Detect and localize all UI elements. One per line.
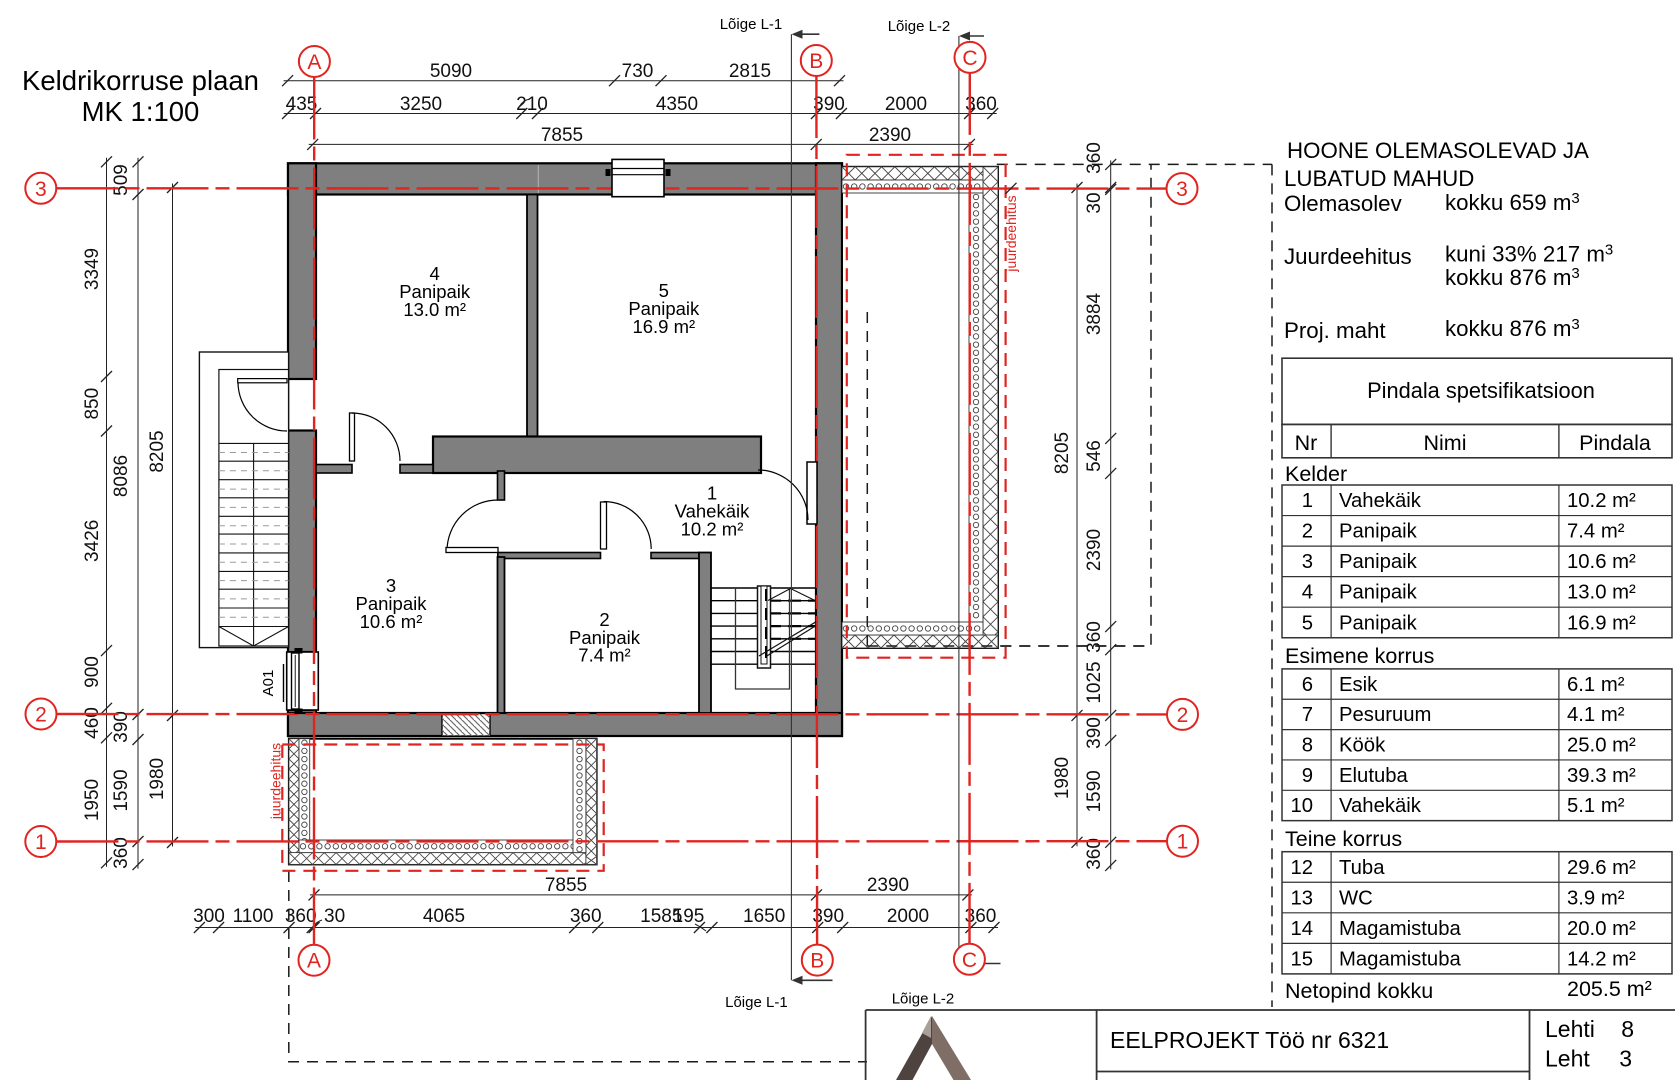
svg-text:13.0 m²: 13.0 m² xyxy=(403,299,466,320)
svg-text:8: 8 xyxy=(1621,1016,1634,1042)
svg-text:4065: 4065 xyxy=(423,906,465,927)
svg-text:Keldrikorruse plaan: Keldrikorruse plaan xyxy=(22,65,259,96)
svg-text:kokku 876 m3: kokku 876 m3 xyxy=(1445,316,1580,341)
svg-text:205.5 m²: 205.5 m² xyxy=(1567,977,1652,1001)
svg-text:Magamistuba: Magamistuba xyxy=(1339,948,1461,970)
svg-text:HOONE OLEMASOLEVAD JA: HOONE OLEMASOLEVAD JA xyxy=(1287,138,1589,163)
svg-text:3349: 3349 xyxy=(82,248,103,290)
svg-text:LUBATUD MAHUD: LUBATUD MAHUD xyxy=(1284,166,1474,191)
svg-text:1: 1 xyxy=(35,831,47,854)
svg-text:Köök: Köök xyxy=(1339,734,1386,756)
svg-text:7855: 7855 xyxy=(545,875,587,896)
svg-text:13: 13 xyxy=(1290,887,1313,909)
svg-text:7855: 7855 xyxy=(541,125,583,146)
svg-text:300: 300 xyxy=(193,906,225,927)
svg-text:390: 390 xyxy=(1084,717,1105,749)
svg-text:C: C xyxy=(962,47,977,70)
svg-text:Kelder: Kelder xyxy=(1285,462,1347,486)
svg-text:7.4 m²: 7.4 m² xyxy=(1567,521,1625,543)
svg-text:8086: 8086 xyxy=(111,455,132,497)
svg-text:7: 7 xyxy=(1302,704,1313,726)
svg-text:4350: 4350 xyxy=(656,94,698,115)
svg-text:10: 10 xyxy=(1290,795,1313,817)
svg-text:20.0 m²: 20.0 m² xyxy=(1567,918,1636,940)
svg-text:2815: 2815 xyxy=(729,61,771,82)
svg-text:Teine korrus: Teine korrus xyxy=(1285,827,1402,851)
svg-text:9: 9 xyxy=(1302,765,1313,787)
svg-text:MK 1:100: MK 1:100 xyxy=(82,96,200,127)
svg-text:juurdeehitus: juurdeehitus xyxy=(268,743,284,820)
svg-text:5.1 m²: 5.1 m² xyxy=(1567,795,1625,817)
svg-text:1590: 1590 xyxy=(1084,770,1105,812)
svg-text:3: 3 xyxy=(1619,1046,1632,1072)
svg-text:A: A xyxy=(307,950,321,973)
svg-text:Tuba: Tuba xyxy=(1339,857,1385,879)
svg-text:Juurdeehitus: Juurdeehitus xyxy=(1284,244,1412,269)
svg-text:900: 900 xyxy=(82,656,103,688)
svg-text:1: 1 xyxy=(1177,831,1189,854)
svg-text:15: 15 xyxy=(1290,948,1313,970)
svg-text:Panipaik: Panipaik xyxy=(1339,551,1418,573)
svg-text:C: C xyxy=(962,949,977,972)
svg-text:3426: 3426 xyxy=(82,520,103,562)
svg-text:8205: 8205 xyxy=(147,430,168,472)
svg-text:B: B xyxy=(809,50,823,73)
svg-text:Lõige L-1: Lõige L-1 xyxy=(720,16,783,33)
svg-text:4: 4 xyxy=(1302,582,1313,604)
svg-text:2390: 2390 xyxy=(869,125,911,146)
svg-text:10.6 m²: 10.6 m² xyxy=(1567,551,1636,573)
svg-text:6: 6 xyxy=(1302,674,1313,696)
svg-text:Panipaik: Panipaik xyxy=(1339,582,1418,604)
svg-text:10.2 m²: 10.2 m² xyxy=(1567,490,1636,512)
svg-text:2390: 2390 xyxy=(867,875,909,896)
svg-text:1650: 1650 xyxy=(743,906,785,927)
svg-text:1: 1 xyxy=(1302,490,1313,512)
svg-text:Nr: Nr xyxy=(1295,431,1318,455)
svg-text:WC: WC xyxy=(1339,887,1373,909)
svg-text:2000: 2000 xyxy=(885,94,927,115)
svg-text:Lehti: Lehti xyxy=(1545,1016,1595,1042)
svg-text:30: 30 xyxy=(324,906,345,927)
svg-text:kokku 876 m3: kokku 876 m3 xyxy=(1445,265,1580,290)
svg-text:2: 2 xyxy=(1302,521,1313,543)
svg-text:3.9 m²: 3.9 m² xyxy=(1567,887,1625,909)
svg-text:360: 360 xyxy=(570,906,602,927)
svg-text:Nimi: Nimi xyxy=(1424,431,1467,455)
svg-text:Esimene korrus: Esimene korrus xyxy=(1285,644,1434,668)
svg-text:10.2 m²: 10.2 m² xyxy=(681,518,744,539)
svg-text:EELPROJEKT Töö nr 6321: EELPROJEKT Töö nr 6321 xyxy=(1110,1027,1389,1053)
svg-text:435: 435 xyxy=(286,94,318,115)
svg-text:Lõige L-1: Lõige L-1 xyxy=(725,994,788,1011)
svg-text:3: 3 xyxy=(35,178,47,201)
svg-text:1980: 1980 xyxy=(1052,757,1073,799)
svg-text:1590: 1590 xyxy=(111,769,132,811)
svg-text:39.3 m²: 39.3 m² xyxy=(1567,765,1636,787)
svg-text:360: 360 xyxy=(285,906,317,927)
svg-text:14.2 m²: 14.2 m² xyxy=(1567,948,1636,970)
svg-text:Magamistuba: Magamistuba xyxy=(1339,918,1461,940)
svg-text:Vahekäik: Vahekäik xyxy=(1339,795,1422,817)
svg-text:850: 850 xyxy=(82,388,103,420)
svg-text:7.4 m²: 7.4 m² xyxy=(578,645,630,666)
svg-text:Lõige L-2: Lõige L-2 xyxy=(892,991,955,1008)
svg-text:546: 546 xyxy=(1084,440,1105,472)
svg-text:kuni 33% 217 m3: kuni 33% 217 m3 xyxy=(1445,242,1613,267)
svg-text:1025: 1025 xyxy=(1084,661,1105,703)
svg-text:2: 2 xyxy=(35,704,47,727)
svg-text:360: 360 xyxy=(1084,838,1105,870)
svg-text:360: 360 xyxy=(1084,142,1105,174)
svg-text:1980: 1980 xyxy=(147,758,168,800)
svg-text:509: 509 xyxy=(111,164,132,196)
svg-text:13.0 m²: 13.0 m² xyxy=(1567,582,1636,604)
svg-text:3: 3 xyxy=(1176,178,1188,201)
svg-text:16.9 m²: 16.9 m² xyxy=(632,316,695,337)
svg-text:Panipaik: Panipaik xyxy=(1339,612,1418,634)
svg-text:1950: 1950 xyxy=(82,779,103,821)
svg-text:Pindala: Pindala xyxy=(1579,431,1651,455)
svg-text:Lõige L-2: Lõige L-2 xyxy=(888,18,951,35)
svg-text:12: 12 xyxy=(1290,857,1313,879)
svg-text:390: 390 xyxy=(813,94,845,115)
svg-text:360: 360 xyxy=(1084,621,1105,653)
svg-text:juurdeehitus: juurdeehitus xyxy=(1003,195,1019,272)
svg-text:Leht: Leht xyxy=(1545,1046,1590,1072)
svg-text:Pesuruum: Pesuruum xyxy=(1339,704,1431,726)
svg-text:14: 14 xyxy=(1290,918,1313,940)
svg-text:Esik: Esik xyxy=(1339,674,1378,696)
svg-text:10.6 m²: 10.6 m² xyxy=(360,611,423,632)
svg-text:8: 8 xyxy=(1302,734,1313,756)
svg-text:390: 390 xyxy=(111,711,132,743)
svg-text:3884: 3884 xyxy=(1084,292,1105,335)
svg-text:1100: 1100 xyxy=(233,906,274,927)
svg-text:2: 2 xyxy=(1177,704,1189,727)
svg-text:5090: 5090 xyxy=(430,61,472,82)
svg-text:Panipaik: Panipaik xyxy=(1339,521,1418,543)
svg-text:4.1 m²: 4.1 m² xyxy=(1567,704,1625,726)
svg-text:8205: 8205 xyxy=(1052,432,1073,474)
svg-text:Elutuba: Elutuba xyxy=(1339,765,1409,787)
svg-text:30: 30 xyxy=(1084,192,1105,213)
svg-text:2390: 2390 xyxy=(1084,529,1105,571)
svg-text:A: A xyxy=(307,51,321,74)
svg-text:Pindala spetsifikatsioon: Pindala spetsifikatsioon xyxy=(1367,378,1595,403)
svg-text:5: 5 xyxy=(1302,612,1313,634)
svg-text:3250: 3250 xyxy=(400,94,442,115)
svg-text:Vahekäik: Vahekäik xyxy=(1339,490,1422,512)
svg-text:25.0 m²: 25.0 m² xyxy=(1567,734,1636,756)
svg-text:29.6 m²: 29.6 m² xyxy=(1567,857,1636,879)
svg-text:3: 3 xyxy=(1302,551,1313,573)
svg-text:2000: 2000 xyxy=(887,906,929,927)
svg-text:Olemasolev: Olemasolev xyxy=(1284,191,1403,216)
svg-text:460: 460 xyxy=(82,707,103,739)
svg-text:kokku 659 m3: kokku 659 m3 xyxy=(1445,190,1580,215)
svg-text:195: 195 xyxy=(673,906,705,927)
svg-text:16.9 m²: 16.9 m² xyxy=(1567,612,1636,634)
svg-text:730: 730 xyxy=(622,61,654,82)
svg-text:6.1 m²: 6.1 m² xyxy=(1567,674,1625,696)
svg-text:Proj. maht: Proj. maht xyxy=(1284,318,1386,343)
svg-text:Netopind kokku: Netopind kokku xyxy=(1285,979,1433,1003)
svg-text:B: B xyxy=(810,950,824,973)
svg-text:A01: A01 xyxy=(260,670,277,697)
